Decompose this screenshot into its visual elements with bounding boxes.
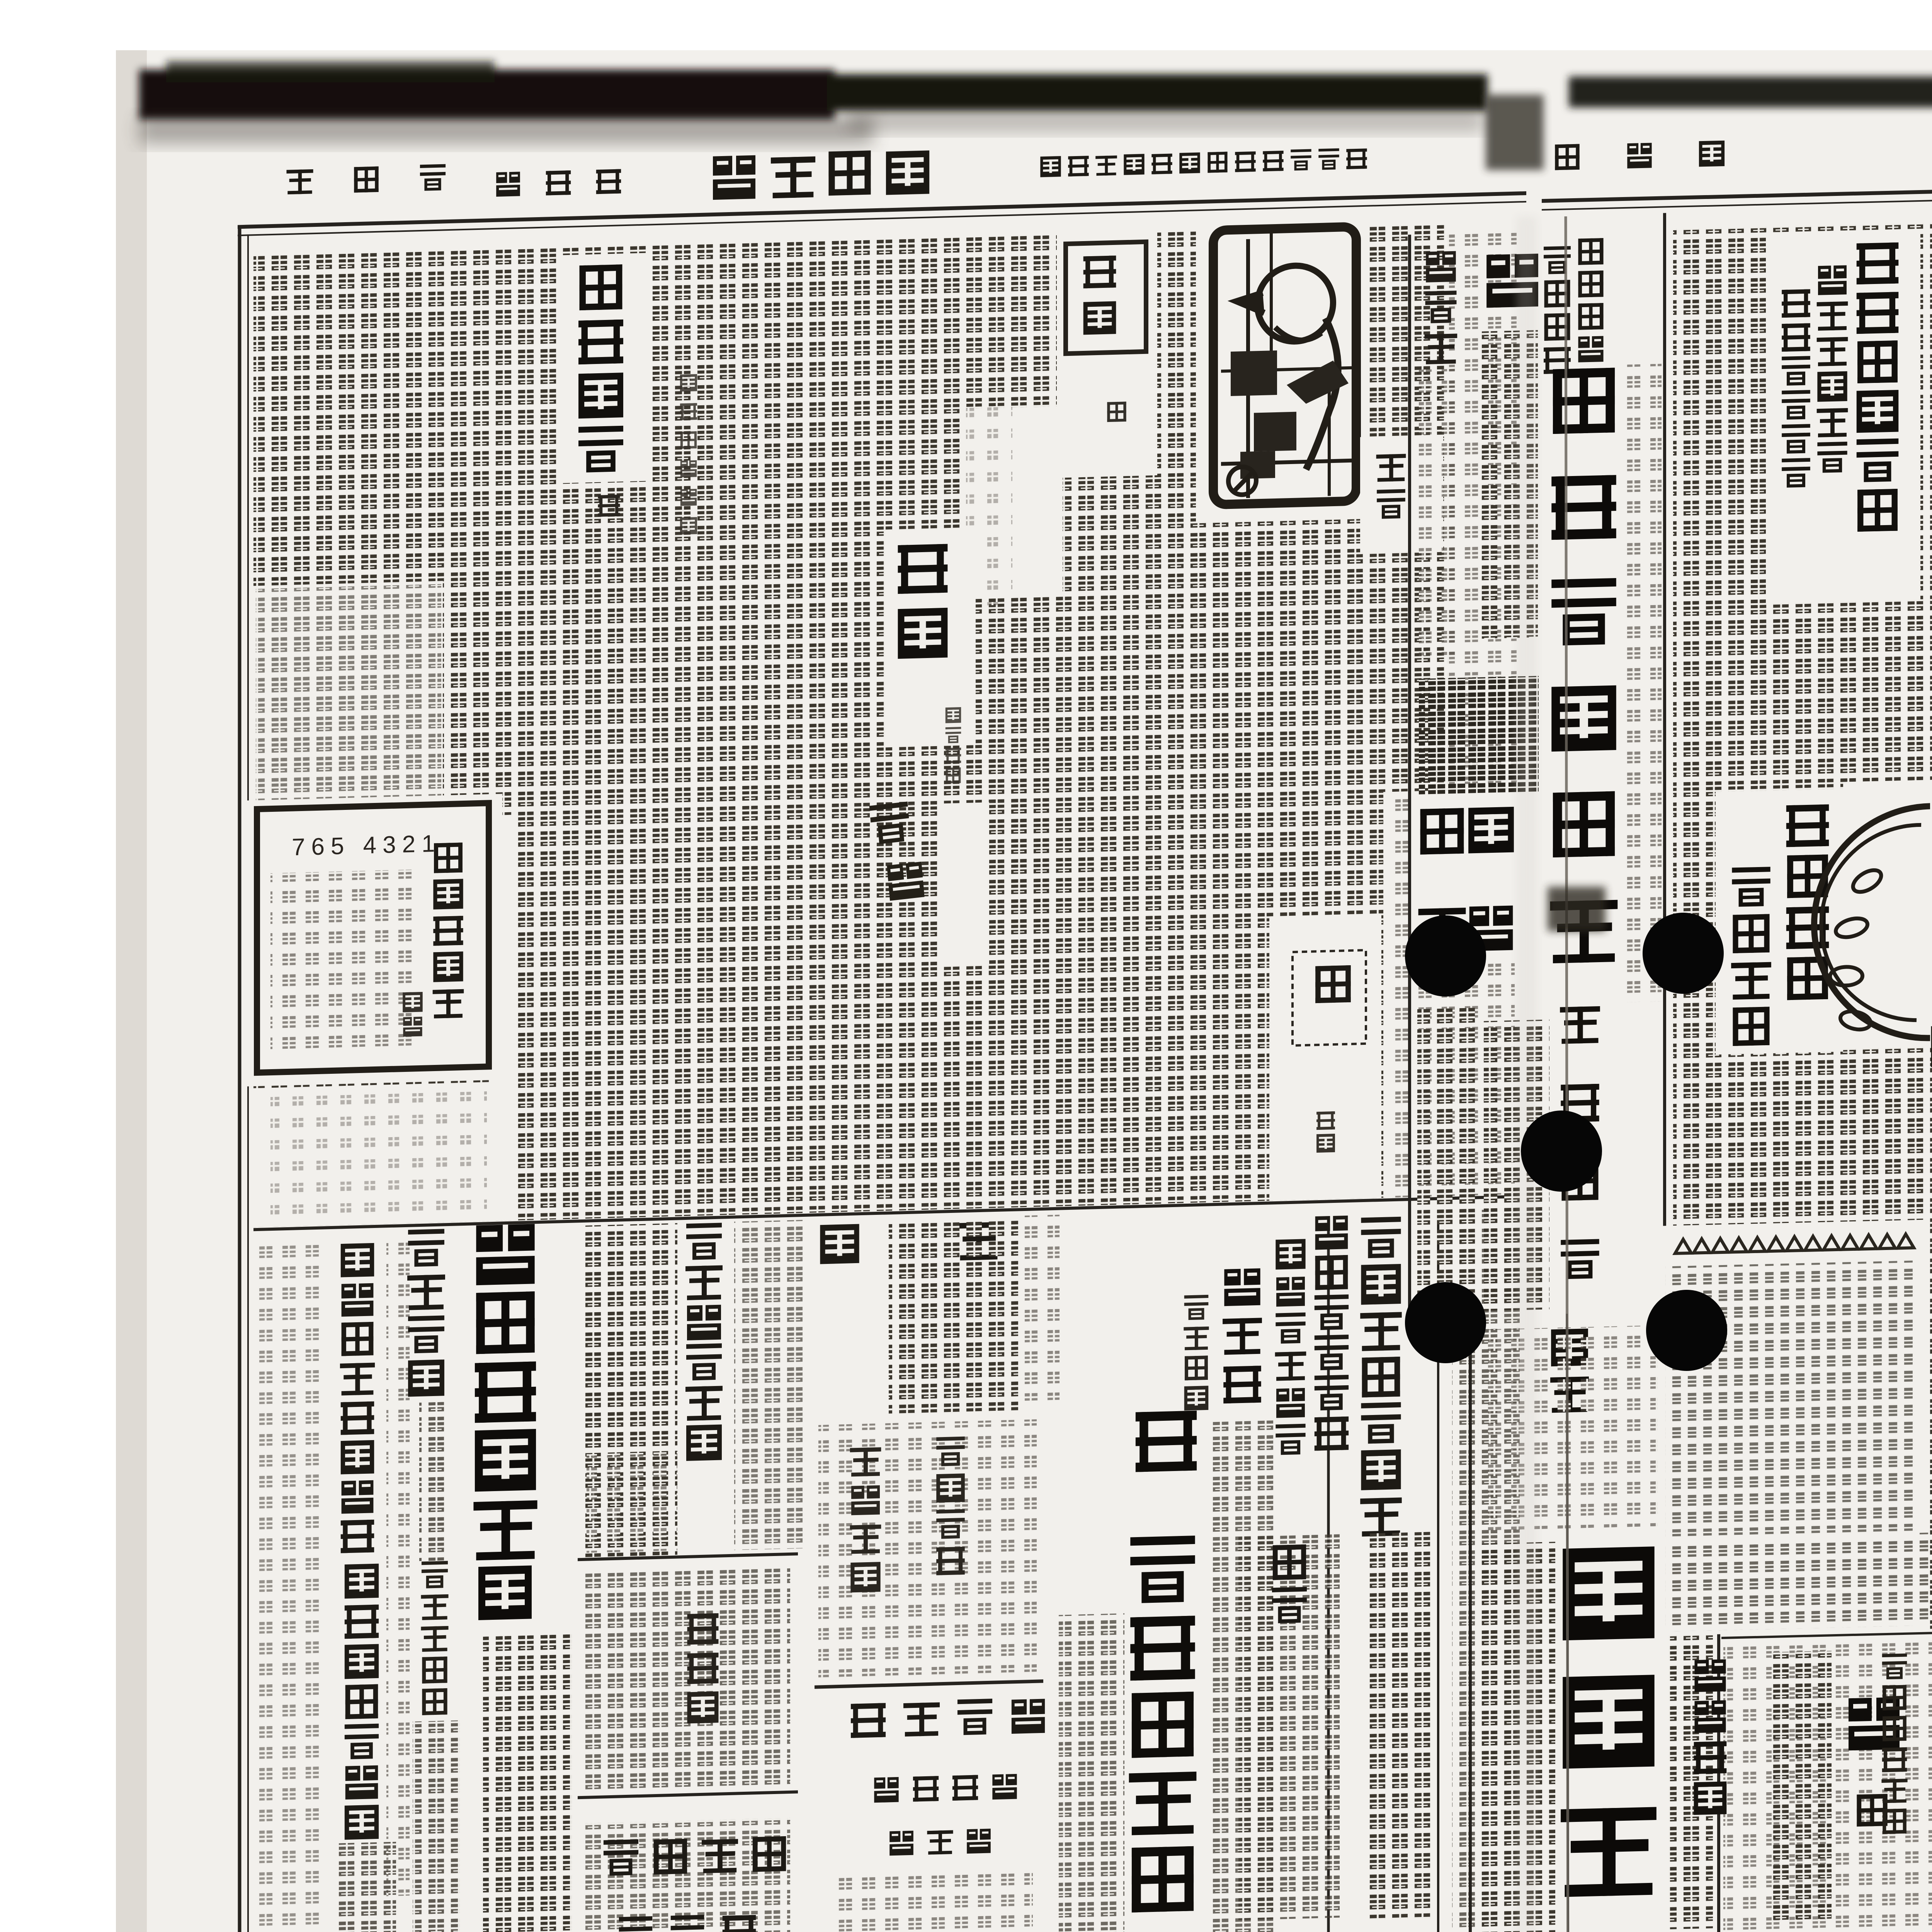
svg-text:765 4321: 765 4321 (292, 830, 441, 861)
